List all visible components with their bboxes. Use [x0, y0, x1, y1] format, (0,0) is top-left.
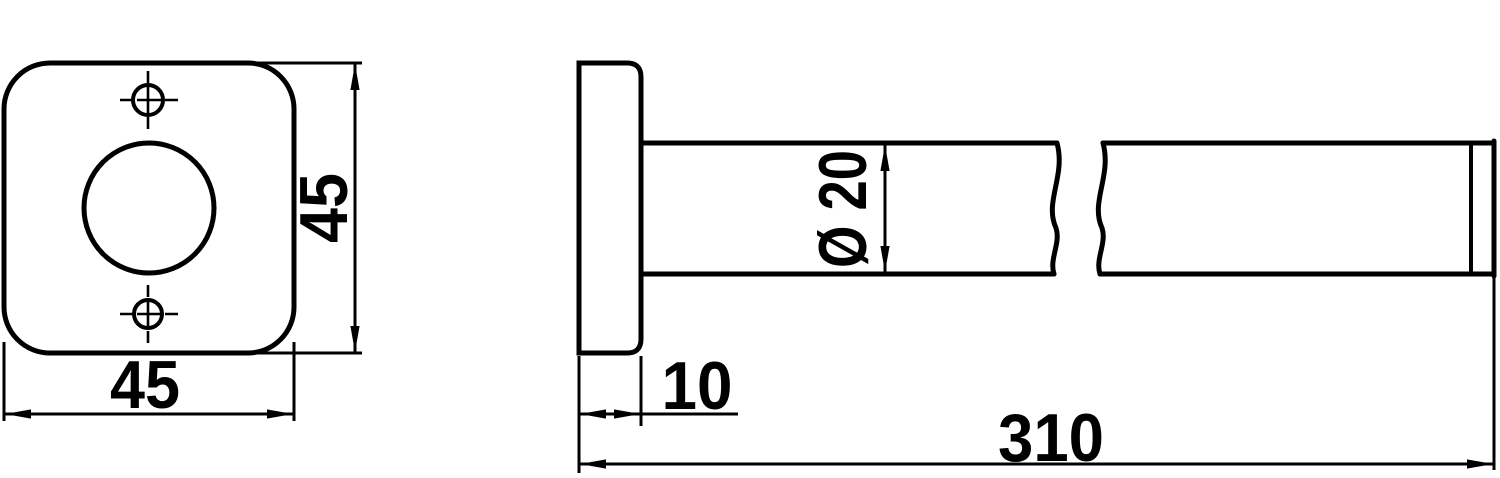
width-dim-label: 45: [110, 347, 180, 423]
width-dim-arrow-right: [267, 409, 293, 418]
width-dim-arrow-left: [5, 409, 31, 418]
thickness-dim-arrow-right: [614, 409, 640, 418]
length-dim-label: 310: [998, 400, 1104, 476]
length-dim-arrow-left: [580, 459, 606, 468]
length-dim-arrow-right: [1467, 459, 1493, 468]
technical-drawing-page: 45 45 Ø 20 10: [0, 0, 1500, 478]
height-dim-label: 45: [286, 173, 362, 243]
front-view: [4, 63, 294, 353]
engineering-drawing: 45 45 Ø 20 10: [0, 0, 1500, 478]
diameter-dim-arrow-bottom: [880, 246, 889, 272]
height-dim-arrow-bottom: [350, 326, 359, 352]
flange-thickness-dimension: 10: [579, 348, 738, 473]
diameter-dim-label: Ø 20: [805, 150, 881, 268]
height-dim-arrow-top: [350, 64, 359, 90]
rod-diameter-dimension: Ø 20: [805, 145, 890, 272]
flange-outline: [579, 63, 641, 353]
thickness-dim-label: 10: [662, 348, 733, 424]
diameter-dim-arrow-top: [880, 145, 889, 171]
break-line-left: [1052, 143, 1059, 274]
break-line-right: [1098, 143, 1105, 274]
side-view: [579, 63, 1494, 353]
thickness-dim-arrow-left: [580, 409, 606, 418]
